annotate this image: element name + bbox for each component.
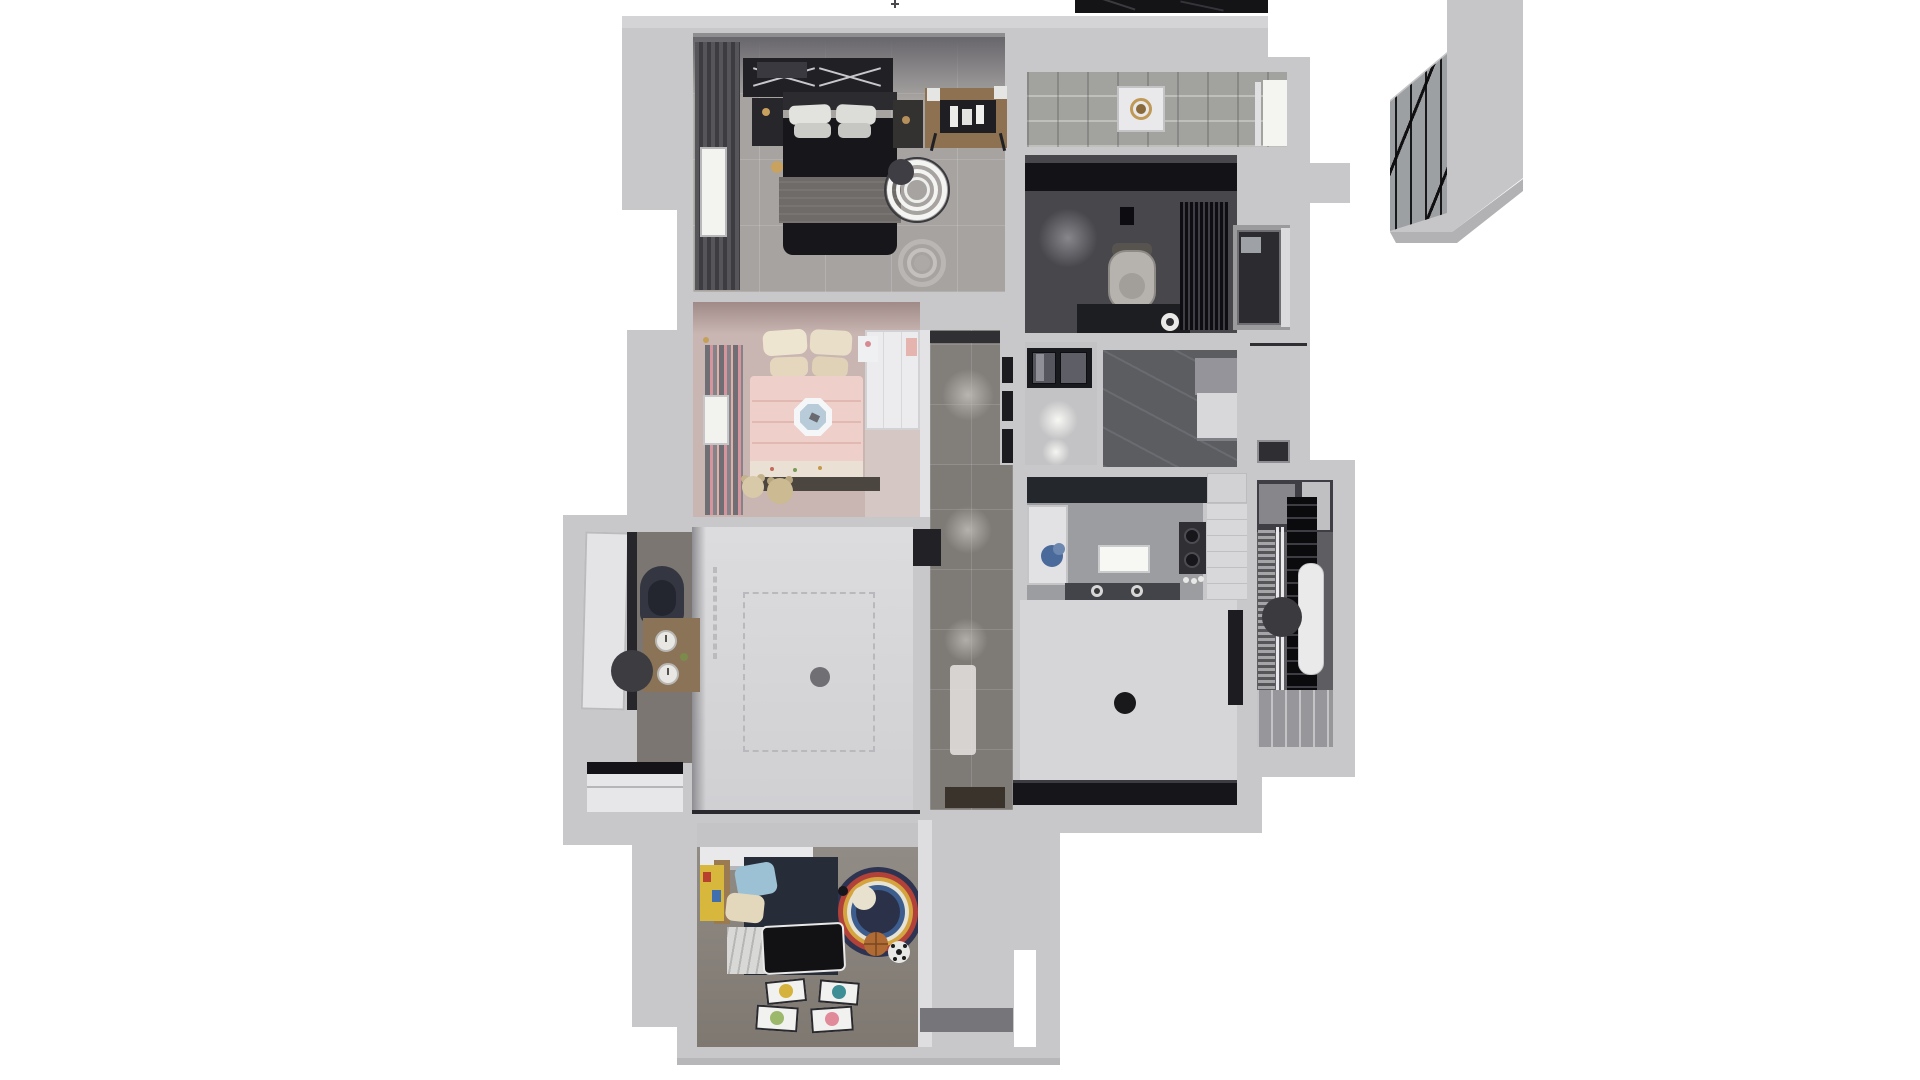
lamp-canopy-disc — [888, 159, 914, 185]
wardrobe-line — [901, 332, 902, 428]
corridor-light — [944, 618, 988, 662]
bed-blanket — [779, 177, 901, 223]
soccer-spot — [903, 944, 907, 948]
curtain-rod-gold — [703, 337, 709, 343]
kitchen-upper-cabinet — [1207, 473, 1247, 503]
pink-pillow — [762, 328, 808, 356]
pink-pillow — [811, 356, 848, 378]
card-monster-green — [770, 1011, 784, 1025]
partition-pane — [1060, 352, 1087, 384]
hall-frame — [1002, 391, 1013, 421]
entry-gap — [1014, 950, 1036, 1047]
spice-jar — [1191, 578, 1197, 584]
flower-vase-bloom — [1053, 543, 1065, 555]
spice-jar — [1183, 577, 1189, 583]
lobby-spotlight — [1038, 400, 1078, 440]
floorplan-canvas — [0, 0, 1920, 1080]
sink-pot-center — [1094, 588, 1100, 594]
pink-floor-light — [865, 430, 920, 517]
speaker — [927, 88, 940, 101]
window-niche-small — [1257, 440, 1290, 463]
rug-outline-dashed — [743, 592, 875, 752]
card-monster-yellow — [779, 984, 793, 998]
bed-floral-band — [750, 461, 863, 477]
stove-burner — [1184, 552, 1200, 568]
decor-gold — [902, 116, 910, 124]
pink-window — [703, 395, 729, 445]
sink-pot-center — [1134, 588, 1140, 594]
clock-hand — [665, 635, 667, 642]
flower-decor — [865, 341, 871, 347]
glossy-floor — [1257, 690, 1333, 747]
rug-crescent — [852, 886, 876, 910]
bed-pillow — [789, 104, 832, 125]
comic-poster-panel — [712, 890, 721, 902]
balcony-window-sill — [587, 774, 683, 812]
soccer-spot — [896, 949, 902, 955]
dark-console — [913, 529, 941, 566]
roof-strip — [1075, 0, 1268, 13]
perfume-bottle — [950, 106, 958, 127]
foyer-window-light — [1263, 80, 1287, 146]
black-cabinet — [1228, 610, 1243, 705]
door-mat — [945, 787, 1005, 808]
perfume-bottle — [976, 105, 984, 124]
hall-frame — [1002, 357, 1013, 383]
card-monster-pink — [825, 1012, 839, 1026]
chair-seat — [1119, 273, 1145, 299]
pink-pillow — [770, 356, 809, 377]
tall-cabinet — [1207, 503, 1247, 600]
study-ceiling-beam — [1025, 163, 1237, 191]
corridor-light — [942, 369, 994, 421]
soccer-spot — [902, 956, 906, 960]
basketball-line — [875, 932, 877, 956]
kitchen-window — [1098, 545, 1150, 573]
plant-sprig — [680, 653, 688, 661]
perfume-bottle — [962, 109, 972, 125]
pink-pillow — [809, 329, 852, 356]
floor-reflection — [950, 665, 976, 755]
water-heater-top — [1262, 597, 1302, 637]
guide-dashed-line — [713, 567, 717, 659]
card-monster-teal — [832, 985, 846, 999]
blackboard-tablet — [761, 922, 846, 975]
window-sill — [1281, 228, 1290, 327]
wall-face-lit — [920, 330, 930, 517]
nightstand — [893, 100, 923, 148]
ceiling-medallion-center — [1136, 104, 1146, 114]
wardrobe-line — [883, 332, 884, 428]
window-glint — [1241, 237, 1261, 253]
pink-nightstand — [858, 336, 878, 362]
comic-poster-panel — [703, 872, 711, 882]
speaker — [994, 86, 1007, 99]
floral-dot — [818, 466, 822, 470]
counter-shadow — [1197, 438, 1237, 441]
soccer-spot — [893, 957, 897, 961]
railing-dark-line — [1250, 343, 1307, 346]
balcony-window-frame — [587, 762, 683, 774]
kids-pillow-cream — [725, 892, 766, 924]
spice-jar — [1198, 576, 1204, 582]
bed-fold — [752, 442, 861, 444]
cursor-cross-h — [891, 3, 899, 5]
entry-step — [920, 1008, 1013, 1032]
kitchen-counter — [1065, 583, 1180, 600]
floor-rug-center — [914, 255, 930, 271]
living-ceiling-lamp-dot — [810, 667, 830, 687]
teddy-bear — [767, 478, 793, 504]
hall-frame — [1002, 429, 1013, 463]
study-blinds — [1180, 202, 1228, 330]
soccer-spot — [891, 944, 895, 948]
top-wall-highlight — [622, 16, 1268, 28]
floral-dot — [793, 468, 797, 472]
lounge-chair-seat — [648, 580, 676, 616]
wardrobe-decor — [906, 338, 917, 356]
bed-pillow — [794, 123, 831, 138]
bottom-wall-shade — [677, 1058, 1060, 1065]
media-wall — [1013, 780, 1237, 805]
bathroom-wall-corner — [1195, 358, 1237, 395]
decor-gold — [762, 108, 770, 116]
teddy-bear — [742, 476, 764, 498]
lobby-spotlight — [1042, 438, 1070, 466]
rug-spindle-dot — [838, 886, 848, 896]
foyer-door-frame — [1255, 82, 1261, 146]
dining-room-floor — [1020, 600, 1237, 782]
nightstand — [752, 98, 783, 146]
kids-wall-shadowline — [692, 810, 920, 814]
mirror-inset — [757, 62, 807, 78]
study-light-glow — [1038, 208, 1098, 268]
bed-pillow — [836, 104, 877, 125]
kitchen-ceiling-beam — [1027, 477, 1207, 503]
dining-ceiling-lamp-dot — [1114, 692, 1136, 714]
partition-glint — [1036, 354, 1044, 381]
sill-line — [587, 786, 683, 788]
round-stool — [611, 650, 653, 692]
floral-dot — [770, 467, 774, 471]
wall-frame — [1119, 206, 1135, 226]
bedroom-top-wall-edge — [693, 33, 1005, 37]
corridor-light — [944, 506, 992, 554]
media-wall-edge — [1013, 780, 1237, 783]
desk-bowl-center — [1166, 318, 1174, 326]
clock-hand — [667, 668, 669, 675]
bed-pillow — [838, 123, 871, 138]
kids-wall-band — [697, 823, 920, 847]
floor-lamp-gold — [771, 161, 783, 173]
corridor-shadow — [930, 331, 1000, 343]
stove-burner — [1184, 528, 1200, 544]
bedroom-window — [700, 147, 727, 237]
bathroom-counter — [1197, 393, 1237, 440]
